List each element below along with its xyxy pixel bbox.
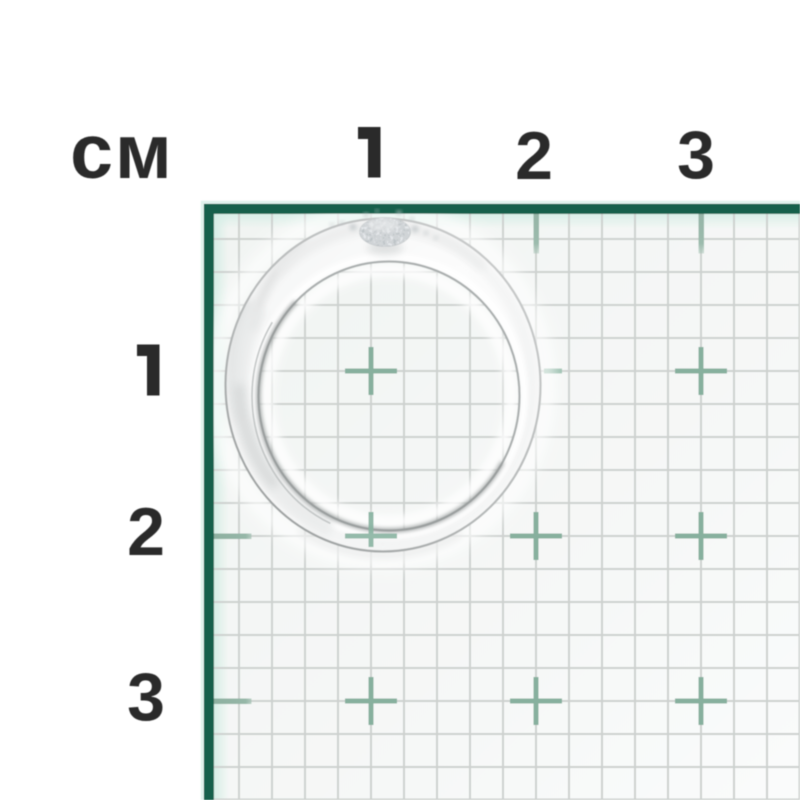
svg-text:3: 3 xyxy=(127,659,165,735)
svg-text:см: см xyxy=(70,109,174,195)
svg-text:2: 2 xyxy=(127,494,165,570)
svg-text:2: 2 xyxy=(515,118,553,194)
svg-text:3: 3 xyxy=(677,117,715,193)
